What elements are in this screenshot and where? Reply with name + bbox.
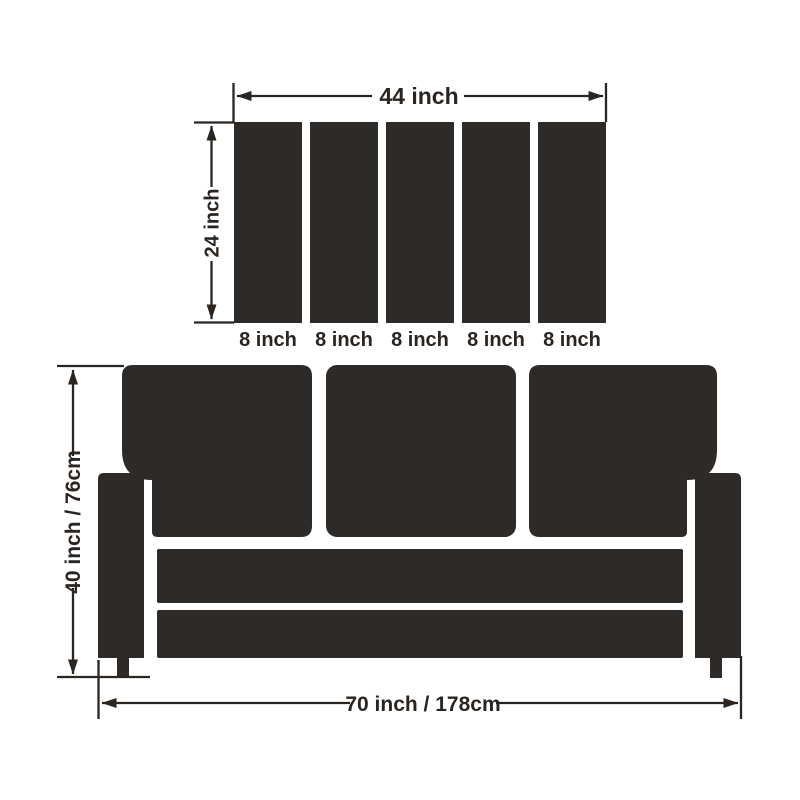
sofa-leg-left [117, 658, 129, 678]
sofa-width-dimension: 70 inch / 178cm [99, 656, 742, 719]
sofa-width-label: 70 inch / 178cm [345, 693, 500, 716]
back-panel-1 [234, 122, 302, 323]
diagram-canvas: 44 inch 24 inch 8 inch 8 inch 8 inch 8 i… [0, 0, 800, 800]
sofa-seat-band [157, 549, 683, 603]
sofa-dimension-diagram: 44 inch 24 inch 8 inch 8 inch 8 inch 8 i… [0, 0, 800, 800]
sofa-back-cushion-right [529, 365, 717, 537]
sofa-back-cushion-left [122, 365, 312, 537]
sofa-armrest-right [695, 473, 741, 658]
sofa-silhouette-group: 40 inch / 76cm 70 inch / 178cm [57, 365, 741, 719]
sofa-base-band [157, 610, 683, 658]
back-panel-5 [538, 122, 606, 323]
panel-segment-label-2: 8 inch [315, 329, 373, 351]
sofa-armrest-left [98, 473, 144, 658]
panel-segment-label-4: 8 inch [467, 329, 525, 351]
sofa-height-label: 40 inch / 76cm [62, 450, 85, 594]
back-panel-4 [462, 122, 530, 323]
panel-height-dimension: 24 inch [194, 123, 234, 323]
back-panel-group: 44 inch 24 inch 8 inch 8 inch 8 inch 8 i… [194, 83, 606, 351]
panel-segment-label-3: 8 inch [391, 329, 449, 351]
panel-height-label: 24 inch [202, 189, 224, 258]
panel-width-label: 44 inch [379, 83, 458, 109]
sofa-leg-right [710, 658, 722, 678]
back-panel-3 [386, 122, 454, 323]
back-panel-2 [310, 122, 378, 323]
panel-segment-label-1: 8 inch [239, 329, 297, 351]
panel-segment-label-5: 8 inch [543, 329, 601, 351]
sofa-back-cushion-middle [326, 365, 516, 537]
panel-segment-labels: 8 inch 8 inch 8 inch 8 inch 8 inch [239, 329, 601, 351]
panel-width-dimension: 44 inch [234, 83, 607, 122]
